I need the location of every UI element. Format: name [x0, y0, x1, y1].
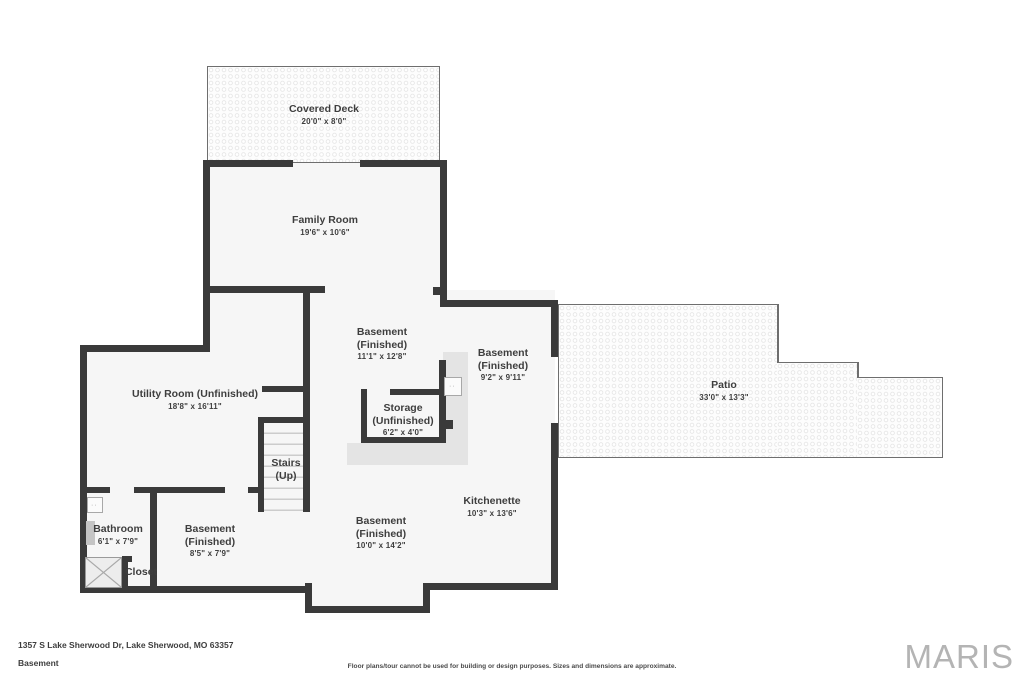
- patio-area-east: [857, 377, 943, 458]
- shower-symbol: [85, 557, 122, 588]
- room-label-kitchenette: Kitchenette 10'3" x 13'6": [463, 495, 520, 519]
- room-label-stairs: Stairs (Up): [271, 457, 300, 482]
- floor-level-label: Basement: [18, 658, 59, 668]
- wall: [440, 160, 447, 307]
- wall: [360, 160, 447, 167]
- wall: [423, 583, 558, 590]
- wall: [390, 389, 445, 395]
- wall: [248, 487, 264, 493]
- room-label-basement-ne: Basement (Finished) 11'1" x 12'8": [357, 326, 407, 362]
- room-label-basement-e: Basement (Finished) 9'2" x 9'11": [478, 347, 528, 383]
- room-label-closet: Closet: [125, 566, 157, 579]
- room-label-covered-deck: Covered Deck 20'0" x 8'0": [289, 103, 359, 127]
- wall: [203, 160, 293, 167]
- floor-plan: ·· ·· Covered Deck 20'0" x 8'0" Family R…: [0, 0, 1024, 682]
- room-label-utility: Utility Room (Unfinished) 18'8" x 16'11": [132, 388, 258, 412]
- wall: [80, 345, 87, 593]
- maris-logo: MARIS: [904, 638, 1014, 676]
- shaded-area-below-storage: [347, 443, 468, 465]
- wall: [433, 287, 440, 295]
- wall: [80, 345, 210, 352]
- wall: [551, 300, 558, 357]
- room-label-basement-sw: Basement (Finished) 8'5" x 7'9": [185, 523, 235, 559]
- wall: [305, 606, 430, 613]
- wall: [80, 487, 110, 493]
- wall: [203, 160, 210, 348]
- sink-symbol: ··: [87, 497, 103, 513]
- wall: [361, 389, 367, 443]
- wall: [439, 360, 446, 443]
- disclaimer-text: Floor plans/tour cannot be used for buil…: [348, 663, 677, 670]
- room-label-patio: Patio 33'0" x 13'3": [699, 379, 749, 403]
- wall: [134, 487, 225, 493]
- wall: [258, 417, 310, 423]
- room-label-family-room: Family Room 19'6" x 10'6": [292, 214, 358, 238]
- room-label-storage: Storage (Unfinished) 6'2" x 4'0": [372, 402, 433, 438]
- water-heater-symbol: ··: [444, 377, 462, 396]
- shower-x-lines: [86, 558, 121, 587]
- wall: [440, 300, 558, 307]
- wall: [303, 286, 310, 512]
- room-label-bathroom: Bathroom 6'1" x 7'9": [93, 523, 143, 547]
- patio-step-edge: [777, 304, 779, 363]
- property-address: 1357 S Lake Sherwood Dr, Lake Sherwood, …: [18, 640, 233, 650]
- wall: [258, 417, 264, 512]
- wall: [551, 423, 558, 590]
- room-label-basement-s: Basement (Finished) 10'0" x 14'2": [356, 515, 406, 551]
- wall: [446, 420, 453, 429]
- patio-step-edge: [857, 362, 859, 378]
- patio-area-middle: [777, 362, 857, 458]
- wall: [262, 386, 310, 392]
